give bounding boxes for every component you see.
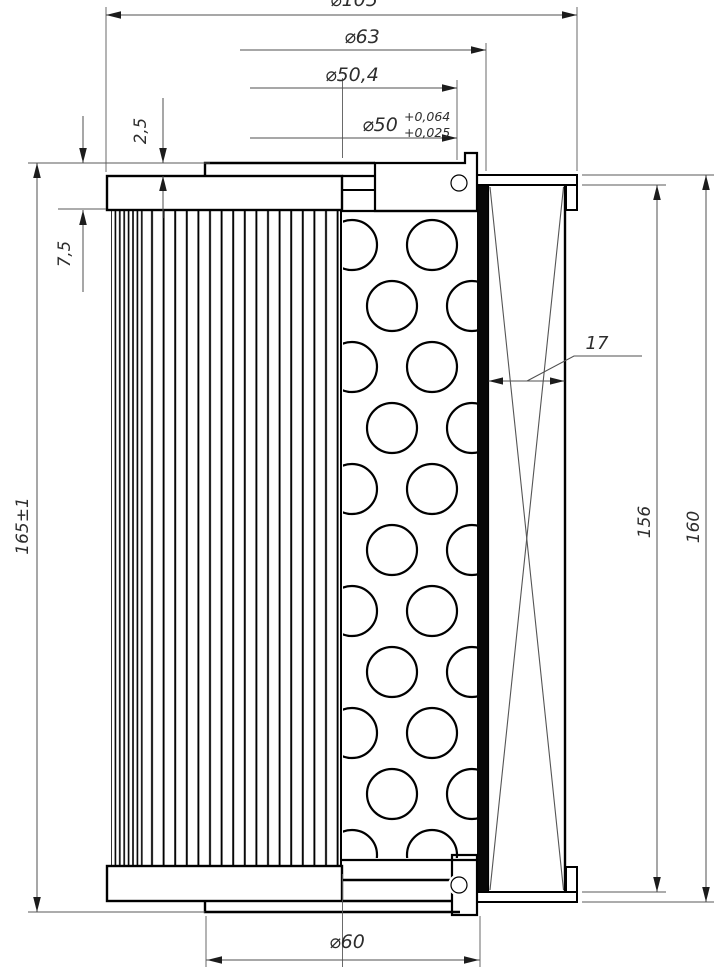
dim-label-dia105: ⌀105 [330, 0, 378, 11]
dim-label-dia60: ⌀60 [329, 931, 365, 953]
top-end-cap-rim [107, 176, 342, 210]
dim-label-156: 156 [635, 506, 655, 539]
dim-label-17: 17 [586, 333, 609, 354]
drawing-sheet: ⌀105 ⌀63 ⌀50,4 ⌀50 +0,064 +0,025 2,5 [0, 0, 724, 971]
filter-element-drawing: ⌀105 ⌀63 ⌀50,4 ⌀50 +0,064 +0,025 2,5 [0, 0, 724, 971]
pleats-regular [143, 211, 340, 866]
dim-label-dia50-4: ⌀50,4 [325, 64, 379, 86]
dim-label-160: 160 [684, 511, 704, 543]
dim-label-2-5: 2,5 [131, 118, 150, 144]
dim-label-dia50: ⌀50 [362, 114, 398, 136]
pleat-tips-strip [477, 185, 489, 892]
dim-label-7-5: 7,5 [55, 241, 74, 267]
bottom-end-cap-rim [107, 866, 342, 901]
dim-label-165: 165±1 [13, 497, 33, 555]
pleats-dense-shading [111, 211, 143, 866]
sheet-background [0, 0, 724, 971]
dim-label-dia63: ⌀63 [344, 26, 380, 48]
dim-label-dia50-tol-upper: +0,064 [404, 109, 450, 124]
dim-label-dia50-tol-lower: +0,025 [404, 125, 450, 140]
